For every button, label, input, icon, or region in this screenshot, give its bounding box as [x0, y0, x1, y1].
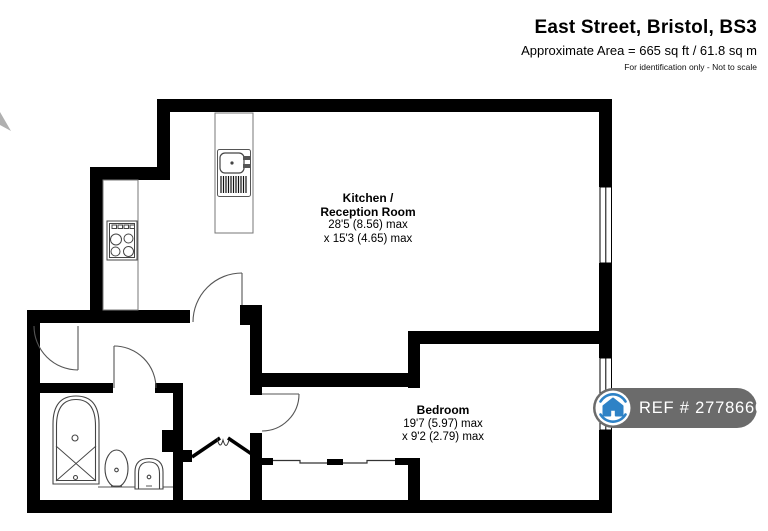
hob-icon	[107, 221, 137, 260]
window-bedroom-bottom	[262, 458, 408, 465]
door-kitchen	[193, 273, 242, 322]
basin-icon	[135, 459, 163, 490]
bedroom-dimensions-line1: 19'7 (5.97) max	[382, 418, 504, 432]
disclaimer: For identification only - Not to scale	[521, 62, 757, 72]
door-hall-left	[34, 326, 78, 370]
floorplan	[0, 0, 768, 531]
header: East Street, Bristol, BS3 Approximate Ar…	[521, 17, 757, 72]
bedroom-name: Bedroom	[382, 404, 504, 418]
door-bathroom	[114, 346, 156, 388]
kitchen-name-line1: Kitchen /	[288, 192, 448, 206]
entrance-double-door	[192, 438, 256, 457]
ref-number: REF # 2778660	[639, 399, 765, 418]
page-title: East Street, Bristol, BS3	[521, 17, 757, 39]
bedroom-room-label: Bedroom 19'7 (5.97) max x 9'2 (2.79) max	[382, 404, 504, 445]
window-right-upper	[600, 187, 612, 263]
bedroom-dimensions-line2: x 9'2 (2.79) max	[382, 431, 504, 445]
approximate-area: Approximate Area = 665 sq ft / 61.8 sq m	[521, 43, 757, 58]
ref-badge: REF # 2778660	[593, 388, 757, 428]
arrow-fragment	[0, 112, 11, 131]
house-icon	[594, 389, 632, 427]
bathtub-icon	[53, 396, 99, 484]
toilet-icon	[105, 450, 128, 487]
kitchen-name-line2: Reception Room	[288, 206, 448, 220]
kitchen-dimensions-line2: x 15'3 (4.65) max	[288, 233, 448, 247]
kitchen-room-label: Kitchen / Reception Room 28'5 (8.56) max…	[288, 192, 448, 246]
door-bedroom	[262, 394, 299, 431]
kitchen-dimensions-line1: 28'5 (8.56) max	[288, 219, 448, 233]
